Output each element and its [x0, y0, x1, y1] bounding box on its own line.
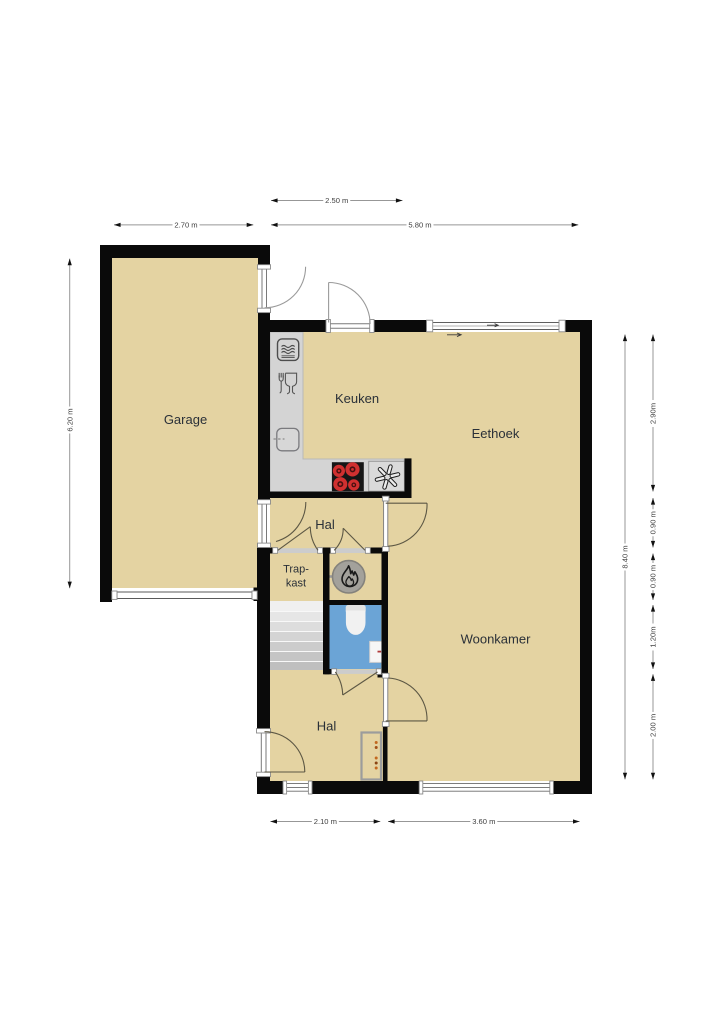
svg-text:2.00 m: 2.00 m — [649, 714, 658, 737]
svg-text:1.20m: 1.20m — [649, 626, 658, 647]
svg-text:Hal: Hal — [317, 718, 337, 733]
svg-text:2.10 m: 2.10 m — [314, 817, 337, 826]
svg-text:5.80 m: 5.80 m — [408, 221, 431, 230]
svg-text:8.40 m: 8.40 m — [621, 545, 630, 568]
svg-text:0.90 m: 0.90 m — [649, 565, 658, 588]
svg-text:Eethoek: Eethoek — [472, 426, 520, 441]
svg-text:Trap-: Trap- — [283, 564, 309, 576]
svg-text:2.90m: 2.90m — [649, 403, 658, 424]
svg-text:Hal: Hal — [315, 517, 335, 532]
svg-text:Woonkamer: Woonkamer — [461, 632, 532, 647]
svg-text:3.60 m: 3.60 m — [472, 817, 495, 826]
svg-text:Keuken: Keuken — [335, 391, 379, 406]
svg-text:6.20 m: 6.20 m — [65, 408, 74, 431]
svg-text:0.90 m: 0.90 m — [649, 511, 658, 534]
svg-text:Garage: Garage — [164, 412, 207, 427]
svg-text:kast: kast — [286, 578, 306, 590]
svg-text:2.70 m: 2.70 m — [174, 221, 197, 230]
svg-text:2.50 m: 2.50 m — [325, 196, 348, 205]
